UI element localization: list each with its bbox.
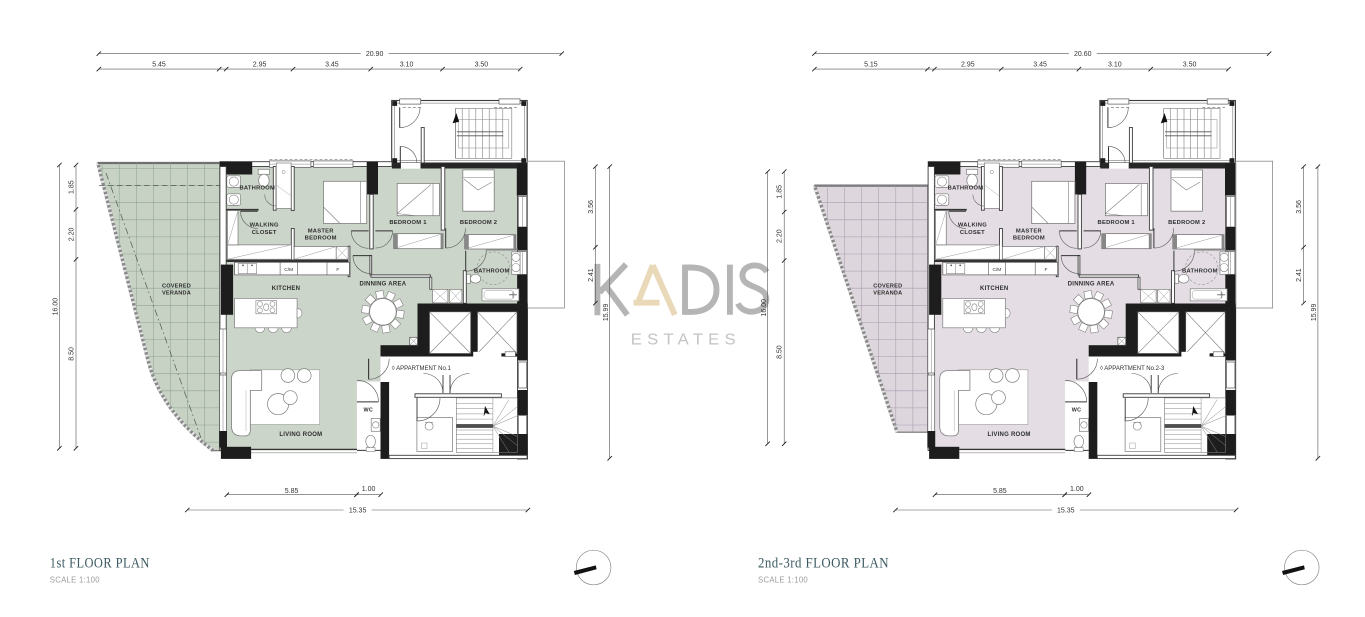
svg-text:BATHROOM: BATHROOM	[948, 185, 984, 191]
svg-text:F: F	[1045, 267, 1048, 273]
svg-text:5.15: 5.15	[864, 62, 878, 69]
svg-text:WC: WC	[1072, 408, 1081, 414]
svg-text:3.56: 3.56	[1296, 200, 1303, 214]
svg-text:3.10: 3.10	[400, 62, 414, 69]
svg-text:BEDROOM: BEDROOM	[1013, 236, 1045, 242]
svg-text:5.45: 5.45	[152, 62, 166, 69]
svg-text:8.50: 8.50	[777, 345, 784, 359]
svg-text:COVERED: COVERED	[162, 284, 191, 290]
svg-text:SCALE 1:100: SCALE 1:100	[758, 576, 808, 585]
svg-text:16.00: 16.00	[53, 298, 60, 316]
svg-text:C/M: C/M	[284, 267, 293, 273]
svg-text:BATHROOM: BATHROOM	[474, 268, 510, 274]
svg-text:1.85: 1.85	[777, 185, 784, 199]
svg-text:DINNING AREA: DINNING AREA	[360, 282, 407, 288]
svg-text:BEDROOM 1: BEDROOM 1	[1098, 220, 1136, 226]
svg-text:COVERED: COVERED	[873, 284, 902, 290]
svg-text:BEDROOM 1: BEDROOM 1	[389, 220, 427, 226]
svg-text:WALKING: WALKING	[250, 223, 279, 229]
svg-text:◊ APPARTMENT No.2-3: ◊ APPARTMENT No.2-3	[1100, 365, 1165, 372]
svg-text:1st FLOOR PLAN: 1st FLOOR PLAN	[50, 556, 150, 572]
svg-text:5.85: 5.85	[285, 488, 299, 495]
svg-text:BEDROOM 2: BEDROOM 2	[1168, 220, 1205, 226]
svg-text:2.95: 2.95	[961, 62, 975, 69]
svg-text:3.10: 3.10	[1108, 62, 1122, 69]
svg-text:KITCHEN: KITCHEN	[272, 286, 300, 292]
svg-text:1.00: 1.00	[1070, 486, 1084, 493]
svg-text:15.35: 15.35	[349, 507, 367, 514]
svg-text:1.00: 1.00	[362, 486, 376, 493]
svg-text:BATHROOM: BATHROOM	[1182, 268, 1218, 274]
svg-text:20.60: 20.60	[1074, 51, 1092, 58]
svg-text:3.45: 3.45	[325, 62, 339, 69]
svg-text:◊ APPARTMENT No.1: ◊ APPARTMENT No.1	[392, 365, 452, 372]
svg-text:WALKING: WALKING	[958, 223, 987, 229]
svg-text:3.56: 3.56	[588, 200, 595, 214]
svg-text:VERANDA: VERANDA	[873, 291, 902, 297]
svg-text:2.41: 2.41	[1296, 268, 1303, 282]
svg-text:15.99: 15.99	[1311, 304, 1318, 322]
svg-text:BEDROOM: BEDROOM	[305, 236, 337, 242]
svg-text:CLOSET: CLOSET	[252, 230, 277, 236]
svg-text:KITCHEN: KITCHEN	[980, 286, 1008, 292]
svg-text:ESTATES: ESTATES	[631, 332, 741, 349]
svg-text:DINNING AREA: DINNING AREA	[1068, 282, 1115, 288]
svg-text:2nd-3rd FLOOR PLAN: 2nd-3rd FLOOR PLAN	[758, 556, 889, 572]
svg-text:LIVING ROOM: LIVING ROOM	[988, 432, 1031, 438]
svg-text:15.35: 15.35	[1057, 507, 1075, 514]
svg-text:16.00: 16.00	[761, 299, 768, 317]
svg-text:2.95: 2.95	[253, 62, 267, 69]
svg-text:F: F	[336, 267, 339, 273]
svg-text:2.20: 2.20	[69, 227, 76, 241]
svg-text:3.50: 3.50	[1183, 62, 1197, 69]
svg-text:MASTER: MASTER	[308, 228, 335, 234]
svg-text:2.41: 2.41	[588, 268, 595, 282]
svg-text:CLOSET: CLOSET	[960, 230, 985, 236]
svg-text:3.50: 3.50	[475, 62, 489, 69]
svg-text:MASTER: MASTER	[1016, 228, 1043, 234]
svg-text:SCALE 1:100: SCALE 1:100	[50, 576, 100, 585]
svg-text:WC: WC	[364, 408, 373, 414]
svg-text:VERANDA: VERANDA	[162, 291, 191, 297]
svg-text:8.50: 8.50	[69, 347, 76, 361]
svg-text:LIVING ROOM: LIVING ROOM	[279, 432, 322, 438]
svg-text:3.45: 3.45	[1033, 62, 1047, 69]
svg-text:BEDROOM 2: BEDROOM 2	[460, 220, 497, 226]
svg-text:20.90: 20.90	[366, 51, 384, 58]
svg-text:5.85: 5.85	[993, 488, 1007, 495]
svg-text:C/M: C/M	[993, 267, 1002, 273]
svg-text:2.20: 2.20	[777, 229, 784, 243]
svg-text:15.99: 15.99	[603, 304, 610, 322]
svg-text:BATHROOM: BATHROOM	[239, 185, 275, 191]
svg-text:1.85: 1.85	[69, 180, 76, 194]
